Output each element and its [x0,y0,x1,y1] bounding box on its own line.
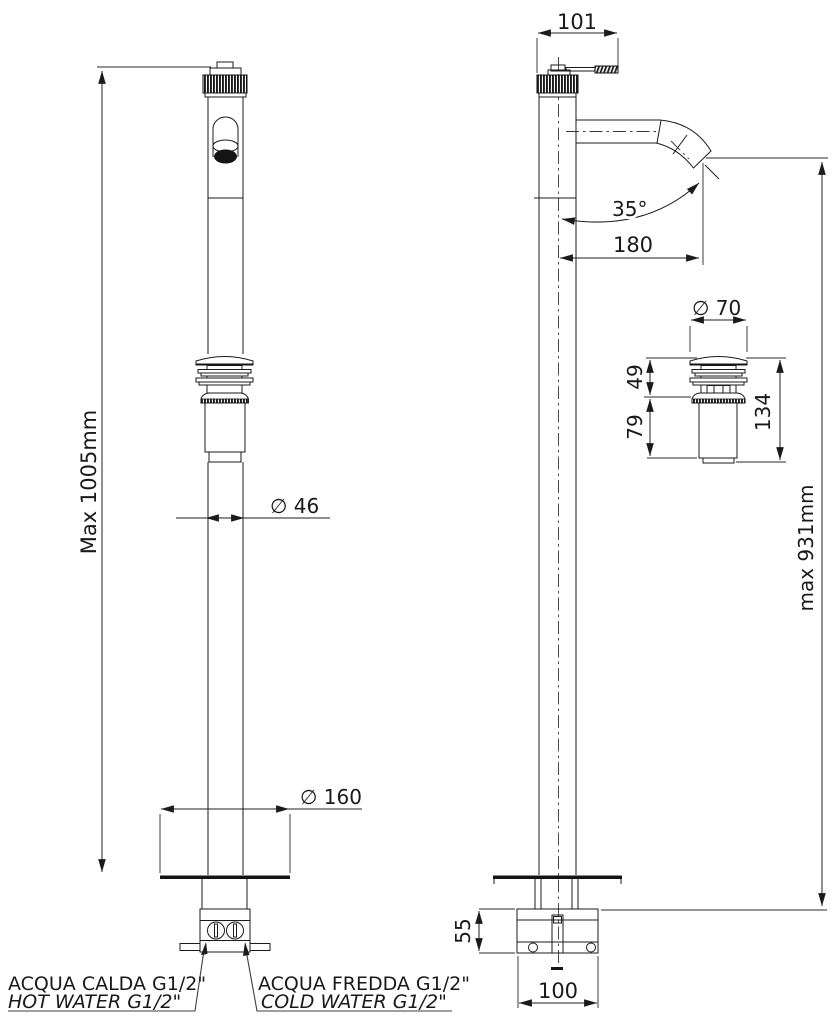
front-view: Max 1005mm [8,62,470,1013]
dim-text-base-depth: 100 [538,979,578,1003]
spout-side [566,120,719,179]
column-side [534,97,576,875]
dim-text-max-height-front: Max 1005mm [77,410,101,554]
dim-text-waste-cap-diameter: ∅ 70 [692,296,741,320]
dim-waste-heights: 49 79 134 [623,358,786,462]
cold-inlet-port [227,922,244,939]
cold-water-label-en: COLD WATER G1/2" [261,991,447,1013]
dim-base-depth: 100 [518,956,598,1008]
dim-spout-height: max 931mm [601,158,828,910]
hot-inlet-port [208,922,225,939]
dim-text-base-height: 55 [451,918,475,943]
dim-waste-cap-diameter: ∅ 70 [690,296,747,352]
cartridge-cap-side [537,65,618,97]
column-front [208,97,243,875]
waste-detail-view: ∅ 70 [623,296,786,463]
cold-water-callout: ACQUA FREDDA G1/2" COLD WATER G1/2" [243,942,470,1013]
dim-text-handle-reach: 101 [557,10,597,34]
faucet-technical-drawing: Max 1005mm [0,0,838,1024]
dim-text-waste-lower: 79 [623,414,647,439]
technical-drawing-canvas: Max 1005mm [0,0,838,1024]
dim-text-waste-upper: 49 [623,364,647,389]
popup-waste-front [196,357,253,463]
dim-text-spout-reach: 180 [613,233,653,257]
dim-overall-height: Max 1005mm [77,67,211,872]
dim-column-diameter: ∅ 46 [176,494,330,518]
floor-flange-side [493,876,622,885]
spout-outlet-front [213,117,238,164]
underfloor-body-side [517,879,598,970]
side-view: 101 35° [451,10,828,1008]
dim-text-spout-angle: 35° [612,197,647,221]
spout-face-tick [705,165,719,179]
dim-text-waste-total: 134 [751,393,775,431]
dim-handle-reach: 101 [537,10,618,73]
underfloor-body-front [180,879,270,952]
dim-text-base-diameter: ∅ 160 [300,785,362,809]
dim-base-diameter: ∅ 160 [160,785,362,873]
hot-water-label-en: HOT WATER G1/2" [8,991,181,1013]
floor-flange-front [160,876,290,880]
dim-base-height: 55 [451,909,515,953]
dim-text-column-diameter: ∅ 46 [270,494,319,518]
dim-spout-angle: 35° [562,183,699,222]
lever-handle [595,66,618,73]
dim-text-max-height-side: max 931mm [794,484,818,611]
hot-water-callout: ACQUA CALDA G1/2" HOT WATER G1/2" [8,942,208,1013]
popup-waste-detail [690,357,747,464]
